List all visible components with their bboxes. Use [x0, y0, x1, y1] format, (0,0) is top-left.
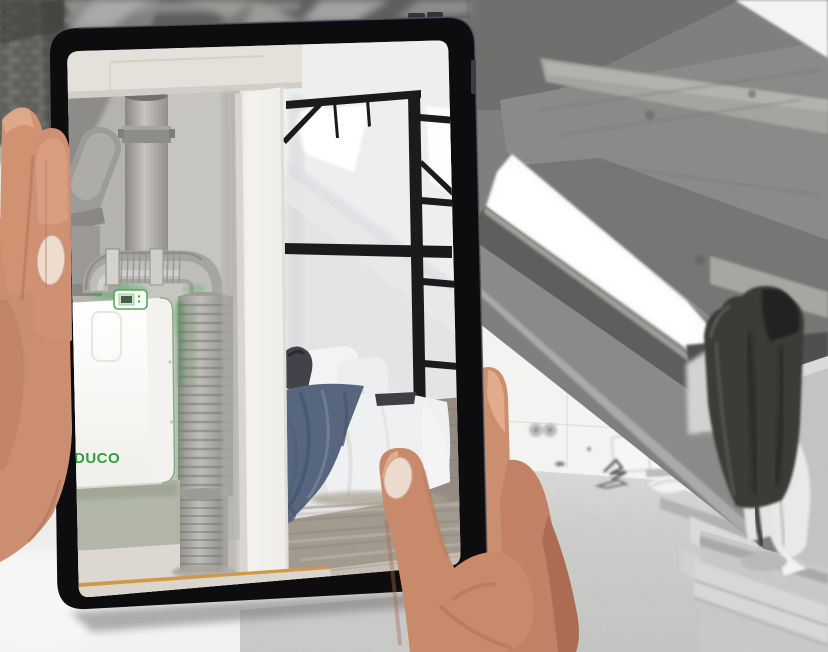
svg-text:DUCO: DUCO	[74, 450, 120, 467]
